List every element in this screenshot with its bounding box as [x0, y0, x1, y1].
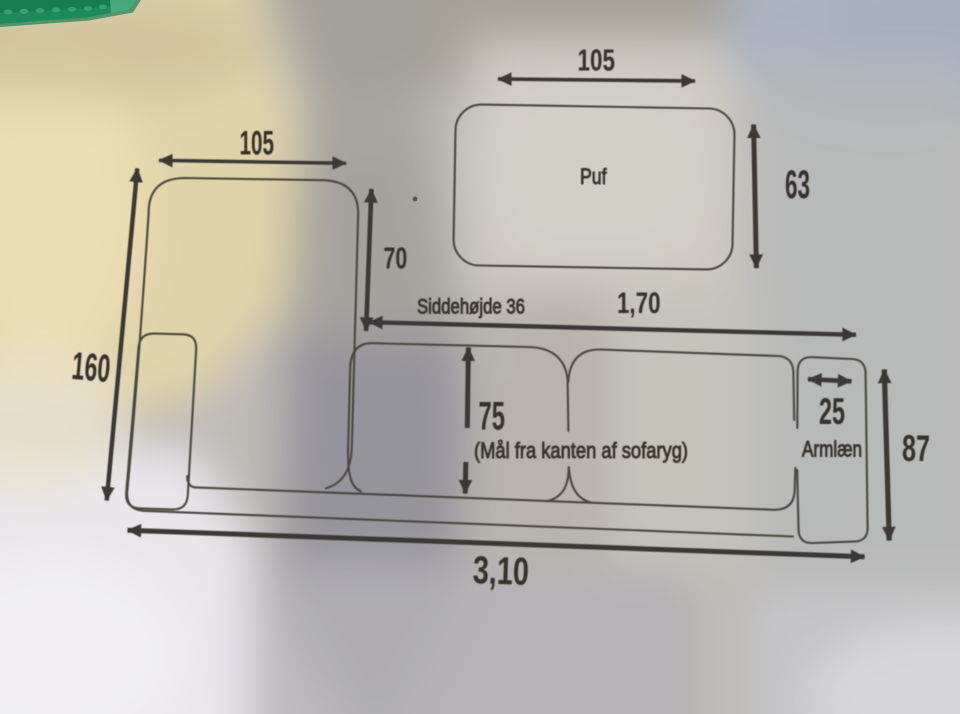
svg-text:(Mål fra kanten af sofaryg): (Mål fra kanten af sofaryg)	[474, 438, 688, 463]
svg-text:Puf: Puf	[580, 164, 607, 189]
svg-text:Armlæn: Armlæn	[802, 437, 862, 462]
svg-text:3,10: 3,10	[472, 549, 529, 594]
svg-text:Siddehøjde 36: Siddehøjde 36	[417, 296, 525, 319]
svg-text:63: 63	[785, 163, 810, 207]
svg-text:160: 160	[70, 345, 112, 391]
svg-text:1,70: 1,70	[617, 287, 661, 320]
svg-text:25: 25	[819, 390, 845, 432]
svg-text:87: 87	[902, 427, 930, 469]
svg-text:105: 105	[578, 43, 616, 78]
svg-text:105: 105	[240, 125, 275, 163]
svg-text:70: 70	[384, 242, 408, 276]
svg-text:75: 75	[479, 395, 505, 439]
